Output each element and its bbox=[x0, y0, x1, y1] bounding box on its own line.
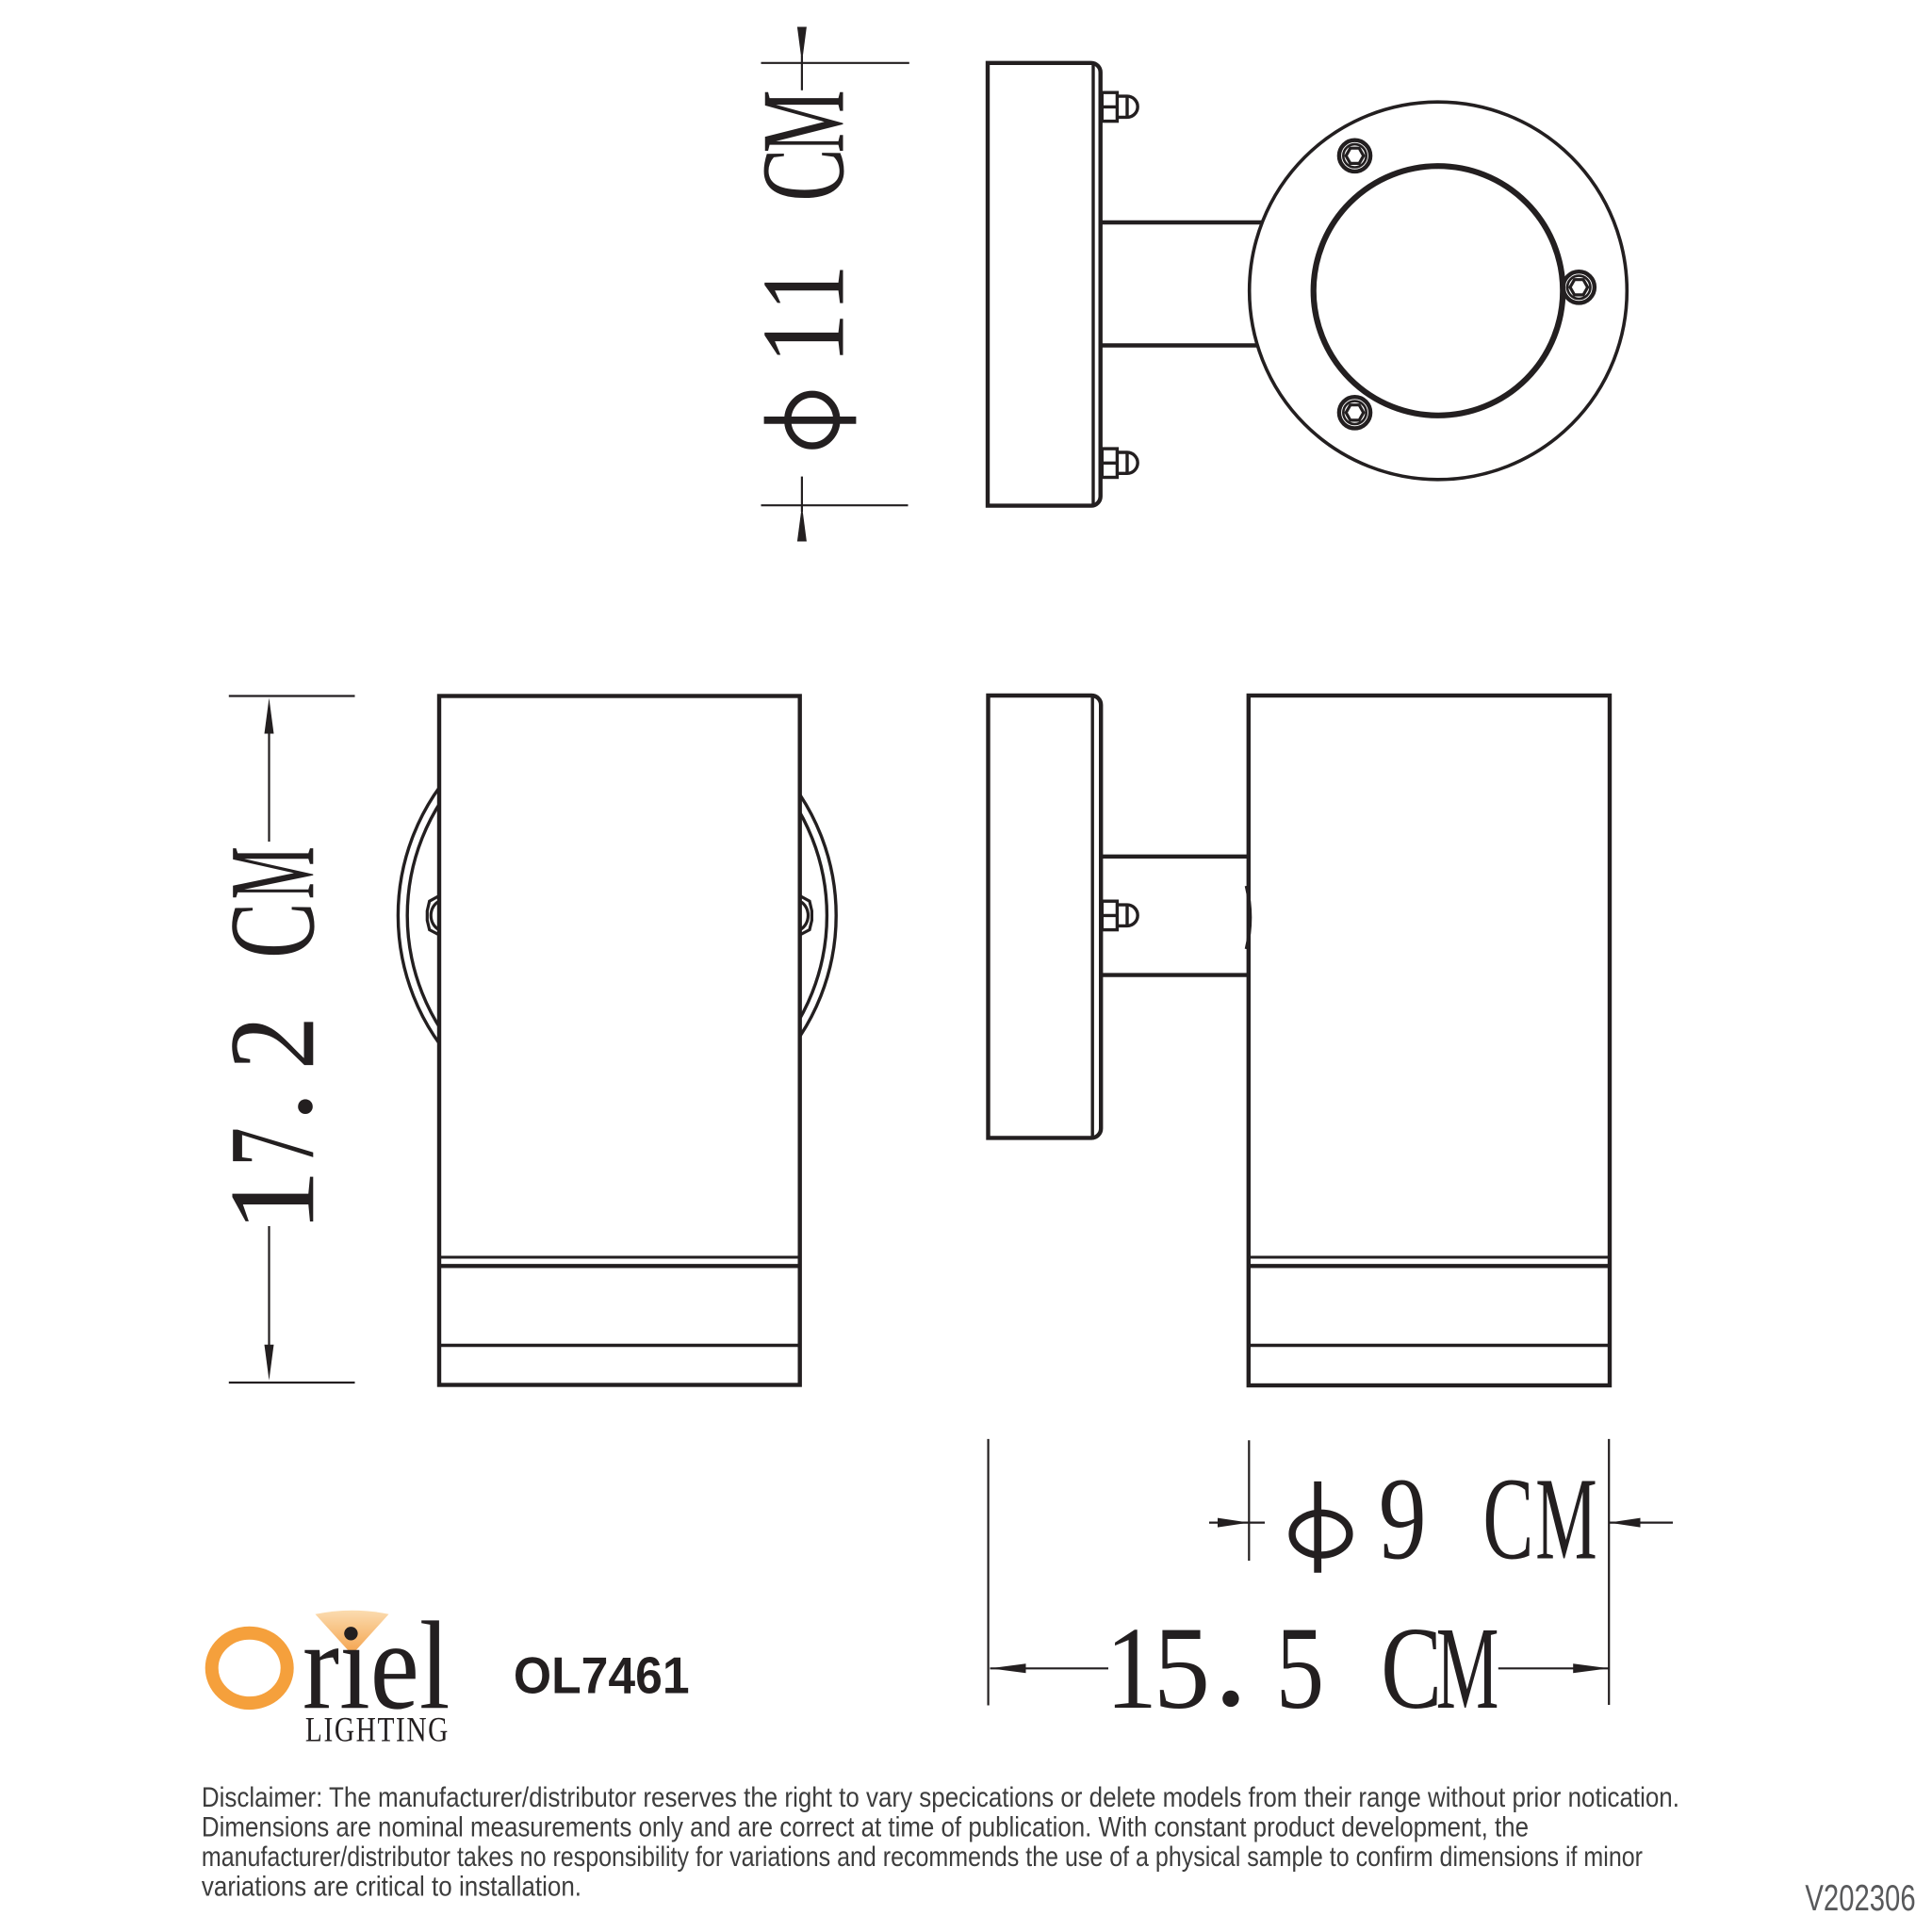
svg-text:Disclaimer: The manufacturer/d: Disclaimer: The manufacturer/distributor… bbox=[202, 1781, 1679, 1812]
svg-text:1: 1 bbox=[1105, 1603, 1157, 1733]
svg-text:M: M bbox=[739, 90, 870, 154]
svg-text:OL7461: OL7461 bbox=[514, 1647, 690, 1705]
svg-text:V202306: V202306 bbox=[1805, 1878, 1915, 1919]
svg-text:2: 2 bbox=[205, 1016, 340, 1070]
svg-text:1: 1 bbox=[205, 1169, 340, 1233]
svg-text:M: M bbox=[205, 846, 341, 899]
svg-text:C: C bbox=[1483, 1453, 1534, 1584]
svg-text:C: C bbox=[205, 902, 341, 958]
svg-text:5: 5 bbox=[1154, 1602, 1210, 1733]
svg-text:M: M bbox=[1535, 1455, 1596, 1585]
svg-text:Dimensions are nominal measure: Dimensions are nominal measurements only… bbox=[202, 1811, 1529, 1842]
svg-text:5: 5 bbox=[1276, 1602, 1324, 1733]
svg-text:9: 9 bbox=[1379, 1454, 1427, 1584]
svg-text:C: C bbox=[739, 149, 870, 202]
svg-text:7: 7 bbox=[204, 1127, 339, 1166]
svg-text:1: 1 bbox=[737, 265, 869, 312]
svg-text:variations are critical to ins: variations are critical to installation. bbox=[202, 1871, 581, 1902]
svg-text:C: C bbox=[1381, 1603, 1442, 1733]
svg-text:M: M bbox=[1436, 1604, 1499, 1734]
svg-text:LIGHTING: LIGHTING bbox=[305, 1711, 450, 1749]
svg-text:1: 1 bbox=[737, 313, 869, 365]
svg-text:manufacturer/distributor takes: manufacturer/distributor takes no respon… bbox=[202, 1841, 1643, 1873]
